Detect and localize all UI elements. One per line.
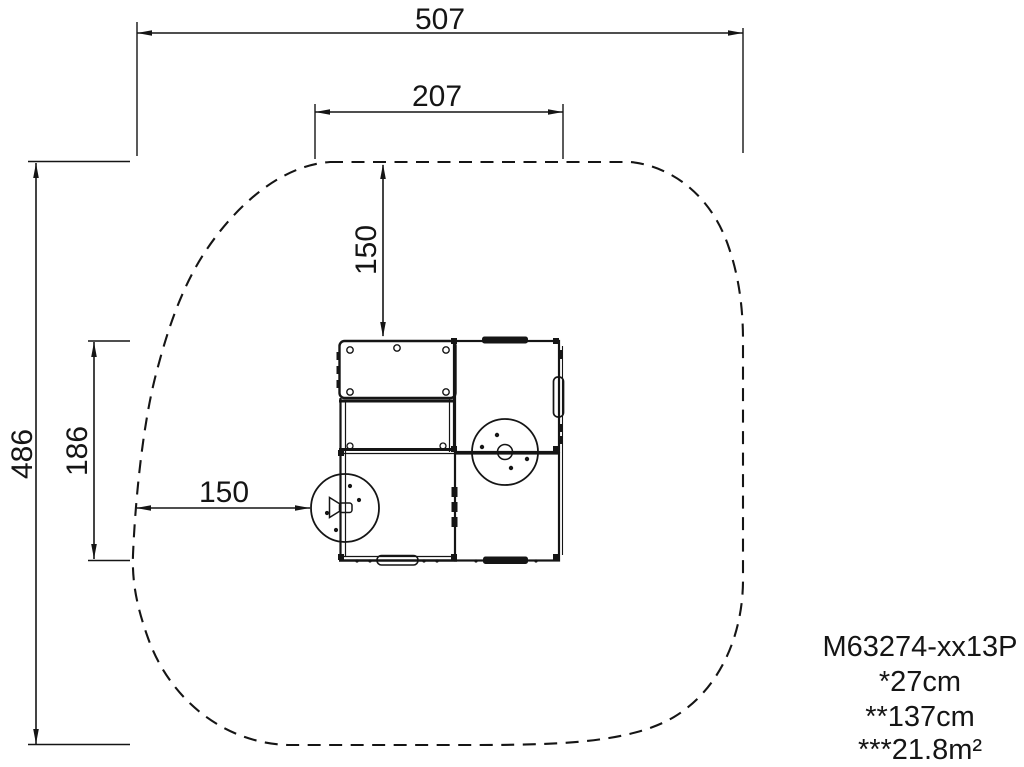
product-model: M63274-xx13P (822, 631, 1017, 663)
dimension-clearance-left: 150 (136, 476, 310, 511)
dim-label-207: 207 (412, 80, 462, 113)
dimension-inner-width: 207 (315, 80, 563, 159)
equipment-unit (311, 337, 564, 566)
bottom-grip-bar (483, 557, 528, 565)
panel-bolts (347, 345, 449, 395)
product-spec-area: ***21.8m² (858, 734, 982, 766)
dim-label-186: 186 (61, 426, 94, 476)
dimension-equipment-depth: 186 (61, 341, 130, 561)
dim-label-486: 486 (6, 429, 39, 479)
installation-drawing: 507 207 486 186 150 150 (0, 0, 1024, 767)
panel-top-left (340, 341, 456, 398)
dimension-clearance-top: 150 (350, 164, 386, 337)
top-grip-bar (482, 337, 528, 344)
dim-label-150-left: 150 (199, 476, 249, 509)
frame-lines-left (339, 341, 457, 561)
speaker-bolt-dots (325, 484, 361, 532)
module-bottom-right (455, 454, 559, 561)
product-spec-fall-height: *27cm (879, 666, 961, 698)
module-top-right (455, 341, 559, 452)
installation-drawing-page: 507 207 486 186 150 150 (0, 0, 1024, 767)
product-spec-height: **137cm (865, 701, 975, 733)
dim-label-507: 507 (415, 3, 465, 36)
dim-label-150-top: 150 (350, 225, 383, 275)
product-info: M63274-xx13P *27cm **137cm ***21.8m² (822, 631, 1017, 766)
